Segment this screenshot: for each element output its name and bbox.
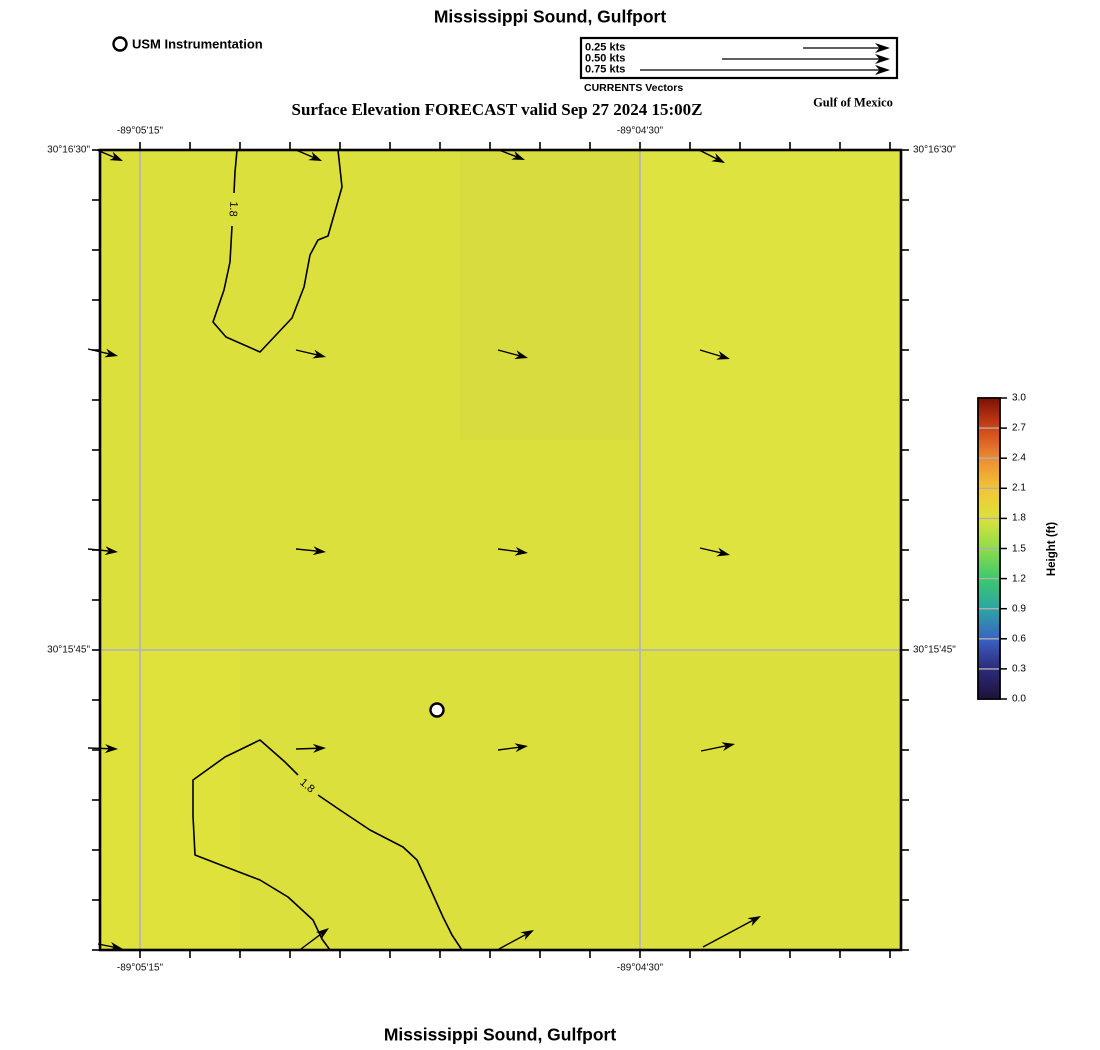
colorbar-axis-label: Height (ft) [1046,522,1058,576]
colorbar-tick-label: 1.8 [1012,513,1026,524]
colorbar-tick-label: 2.1 [1012,483,1026,494]
shade-patch [460,150,640,440]
colorbar-tick-label: 0.6 [1012,633,1026,644]
usm-legend-marker [114,38,127,51]
page-title-bottom: Mississippi Sound, Gulfport [384,1025,616,1046]
latitude-label-left: 30°16'30" [47,145,90,156]
currents-caption: CURRENTS Vectors [584,82,683,94]
colorbar-tick-label: 0.0 [1012,694,1026,705]
colorbar-tick-label: 3.0 [1012,393,1026,404]
usm-legend-label: USM Instrumentation [132,37,263,52]
forecast-map-canvas [0,0,1100,1050]
longitude-label-bottom: -89°04'30" [617,963,663,974]
currents-legend-box [581,38,897,78]
latitude-label-left: 30°15'45" [47,645,90,656]
page-title-top: Mississippi Sound, Gulfport [434,7,666,28]
colorbar-tick-label: 1.2 [1012,573,1026,584]
forecast-subtitle: Surface Elevation FORECAST valid Sep 27 … [291,100,702,120]
legend-speed-075: 0.75 kts [585,65,625,76]
colorbar-tick-label: 2.4 [1012,453,1026,464]
latitude-label-right: 30°15'45" [913,645,956,656]
region-label: Gulf of Mexico [813,96,893,111]
shade-patch [640,150,901,650]
contour-level-label: 1.8 [227,201,240,217]
colorbar-tick-label: 0.9 [1012,603,1026,614]
colorbar-tick-label: 0.3 [1012,663,1026,674]
colorbar-tick-label: 2.7 [1012,423,1026,434]
longitude-label-top: -89°04'30" [617,126,663,137]
current-vector-shaft [296,748,318,749]
longitude-label-bottom: -89°05'15" [117,963,163,974]
shade-patch [100,650,240,950]
usm-station-marker [431,704,444,717]
latitude-label-right: 30°16'30" [913,145,956,156]
forecast-page: Mississippi Sound, Gulfport USM Instrume… [0,0,1100,1050]
longitude-label-top: -89°05'15" [117,126,163,137]
colorbar-tick-label: 1.5 [1012,543,1026,554]
